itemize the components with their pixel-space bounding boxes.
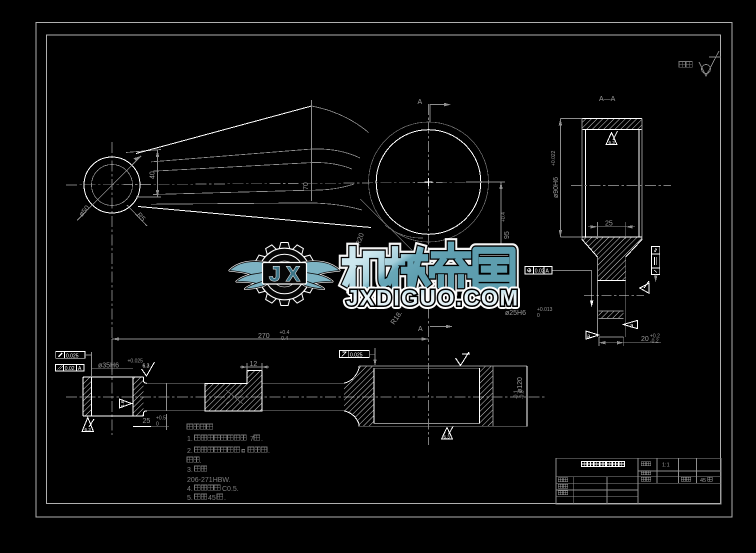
svg-text:-0.2: -0.2: [650, 339, 659, 345]
svg-text:6.3: 6.3: [85, 427, 92, 432]
svg-text:270: 270: [258, 333, 270, 340]
svg-text:6.3: 6.3: [143, 364, 150, 370]
svg-text:12: 12: [250, 361, 258, 368]
svg-text:0.025: 0.025: [350, 352, 363, 358]
svg-text:40: 40: [150, 171, 157, 179]
svg-text:1.: 1.: [187, 436, 193, 443]
svg-text:ø90H6: ø90H6: [553, 177, 560, 198]
svg-text:ø25H6: ø25H6: [505, 310, 526, 317]
svg-text:2.: 2.: [187, 448, 193, 455]
svg-text:3.: 3.: [187, 467, 193, 474]
svg-text:1.6: 1.6: [120, 400, 125, 407]
svg-text:ø120: ø120: [517, 377, 524, 393]
svg-text:206-271HBW.: 206-271HBW.: [187, 477, 231, 484]
svg-text:A: A: [418, 326, 423, 333]
svg-text:JXDIGUO.COM: JXDIGUO.COM: [346, 286, 518, 311]
svg-text:+0.025: +0.025: [128, 359, 144, 365]
svg-text:70: 70: [303, 182, 310, 190]
svg-text:+0.4: +0.4: [501, 212, 507, 222]
svg-text:.: .: [261, 436, 263, 443]
svg-text:A: A: [418, 99, 423, 106]
svg-text:0.025: 0.025: [66, 353, 79, 359]
svg-text:.: .: [200, 458, 202, 465]
svg-text:C0.5.: C0.5.: [222, 486, 239, 493]
svg-text:1:1: 1:1: [662, 463, 670, 469]
svg-text:7: 7: [250, 436, 254, 443]
svg-text:6.3: 6.3: [609, 140, 616, 145]
svg-text:ø35H6: ø35H6: [98, 363, 119, 370]
svg-text:0.02: 0.02: [65, 366, 75, 372]
svg-text:45: 45: [208, 495, 216, 502]
svg-text:45: 45: [700, 478, 706, 484]
svg-text:25: 25: [143, 418, 151, 425]
svg-text:4.: 4.: [187, 486, 193, 493]
svg-text:-0.4: -0.4: [280, 336, 289, 342]
svg-text:0.02: 0.02: [535, 269, 545, 275]
svg-text:95: 95: [504, 231, 511, 239]
svg-text:25: 25: [605, 221, 613, 228]
svg-text:.: .: [268, 448, 270, 455]
svg-text:.: .: [224, 495, 226, 502]
svg-text:6.3: 6.3: [444, 435, 451, 440]
svg-text:0: 0: [537, 313, 540, 319]
svg-text:5.: 5.: [187, 495, 193, 502]
svg-text:+0.022: +0.022: [551, 150, 557, 166]
svg-text:A—A: A—A: [599, 96, 616, 103]
svg-text:20: 20: [641, 336, 649, 343]
